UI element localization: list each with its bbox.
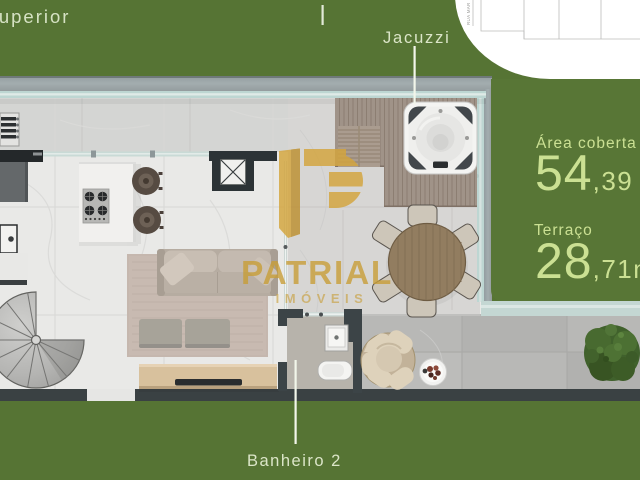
svg-text:Banheiro 2: Banheiro 2 xyxy=(247,452,342,470)
svg-text:Jacuzzi: Jacuzzi xyxy=(383,29,451,47)
svg-text:RUA MAR: RUA MAR xyxy=(466,2,471,25)
svg-text:Superior: Superior xyxy=(0,6,70,27)
svg-text:PATRIAL: PATRIAL xyxy=(241,255,393,292)
svg-text:IMÓVEIS: IMÓVEIS xyxy=(276,291,369,306)
